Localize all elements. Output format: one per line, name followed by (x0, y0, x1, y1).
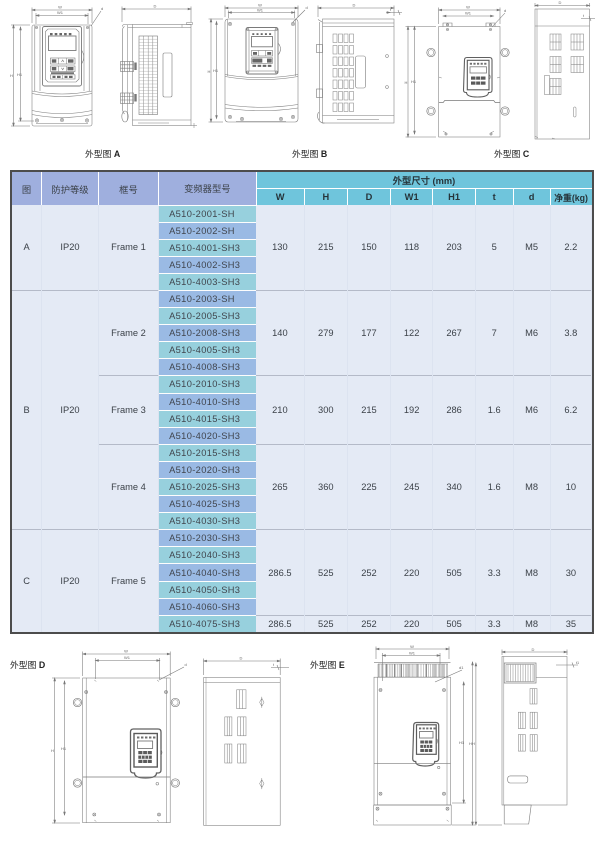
svg-text:H1: H1 (213, 68, 219, 73)
svg-text:H1: H1 (17, 72, 23, 77)
svg-text:D: D (353, 3, 356, 8)
svg-text:W1: W1 (124, 655, 131, 660)
svg-text:W: W (466, 5, 470, 10)
svg-text:D: D (154, 4, 157, 9)
svg-text:外型图 B: 外型图 B (292, 148, 327, 159)
svg-text:H: H (10, 73, 13, 78)
svg-text:D: D (240, 656, 243, 661)
svg-text:外型图 E: 外型图 E (310, 659, 345, 670)
svg-text:H: H (472, 741, 475, 746)
svg-text:W1: W1 (465, 11, 472, 16)
svg-text:W: W (410, 645, 414, 649)
svg-text:t: t (583, 14, 585, 18)
svg-text:d: d (504, 8, 506, 13)
svg-text:H1: H1 (459, 740, 465, 745)
svg-text:d: d (185, 662, 187, 667)
svg-text:t1: t1 (576, 661, 579, 665)
svg-text:W1: W1 (257, 8, 264, 13)
svg-text:W1: W1 (57, 10, 64, 15)
svg-text:W: W (124, 649, 128, 654)
svg-text:W: W (58, 5, 62, 10)
svg-text:H: H (51, 748, 54, 753)
svg-text:D: D (559, 0, 562, 5)
svg-text:t: t (273, 663, 275, 667)
svg-text:H: H (208, 69, 211, 74)
svg-text:H1: H1 (411, 79, 417, 84)
svg-text:外型图 C: 外型图 C (494, 148, 530, 159)
svg-text:H: H (405, 80, 408, 85)
svg-text:外型图 D: 外型图 D (10, 659, 45, 670)
svg-text:W1: W1 (409, 650, 416, 655)
svg-text:d: d (306, 5, 308, 10)
svg-text:外型图 A: 外型图 A (85, 148, 121, 159)
svg-text:d1: d1 (459, 665, 464, 670)
svg-text:D: D (532, 647, 535, 652)
svg-text:d: d (101, 6, 103, 11)
svg-text:H1: H1 (61, 746, 67, 751)
